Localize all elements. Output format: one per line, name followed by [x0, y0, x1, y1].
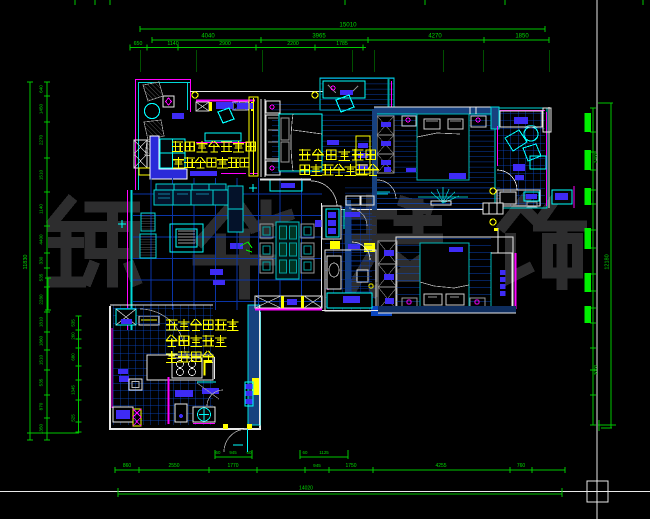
svg-text:945: 945	[313, 463, 321, 468]
svg-text:1345: 1345	[71, 385, 76, 395]
svg-text:2550: 2550	[168, 463, 179, 469]
svg-text:680: 680	[71, 353, 76, 361]
svg-text:870: 870	[39, 402, 44, 410]
svg-text:2900: 2900	[219, 41, 231, 47]
svg-text:650: 650	[134, 41, 143, 47]
svg-text:1140: 1140	[167, 41, 178, 47]
svg-text:1140: 1140	[39, 204, 44, 214]
svg-text:4270: 4270	[428, 34, 442, 40]
svg-text:4255: 4255	[435, 463, 446, 469]
svg-text:2280: 2280	[39, 294, 44, 305]
svg-text:2400: 2400	[593, 152, 598, 163]
svg-text:3965: 3965	[312, 34, 326, 40]
svg-text:1770: 1770	[227, 463, 238, 469]
svg-text:535: 535	[39, 273, 44, 281]
svg-text:1125: 1125	[319, 450, 329, 455]
svg-text:1785: 1785	[336, 41, 348, 47]
svg-text:330: 330	[39, 256, 44, 264]
svg-text:525: 525	[71, 414, 76, 422]
svg-text:1850: 1850	[515, 34, 529, 40]
svg-text:1450: 1450	[39, 103, 44, 114]
svg-text:945: 945	[229, 450, 237, 455]
svg-text:1510: 1510	[39, 169, 44, 180]
svg-text:14020: 14020	[299, 486, 313, 492]
svg-text:60: 60	[216, 450, 221, 455]
svg-text:1860: 1860	[39, 335, 44, 346]
svg-text:3000: 3000	[593, 364, 598, 375]
svg-text:11830: 11830	[23, 255, 29, 270]
svg-text:1510: 1510	[39, 354, 44, 365]
svg-text:1750: 1750	[345, 463, 356, 469]
svg-text:1350: 1350	[39, 423, 44, 434]
svg-text:15010: 15010	[339, 22, 357, 29]
svg-text:260: 260	[71, 332, 76, 340]
svg-text:760: 760	[517, 463, 526, 469]
svg-text:1810: 1810	[39, 316, 44, 327]
svg-text:860: 860	[123, 463, 132, 469]
svg-text:2200: 2200	[287, 41, 299, 47]
svg-text:4040: 4040	[201, 34, 215, 40]
svg-text:535: 535	[71, 319, 76, 327]
svg-text:12180: 12180	[605, 254, 611, 269]
svg-text:535: 535	[39, 378, 44, 386]
svg-text:2270: 2270	[39, 134, 44, 145]
svg-text:640: 640	[39, 85, 44, 93]
svg-text:4400: 4400	[39, 234, 44, 245]
svg-text:60: 60	[303, 450, 308, 455]
